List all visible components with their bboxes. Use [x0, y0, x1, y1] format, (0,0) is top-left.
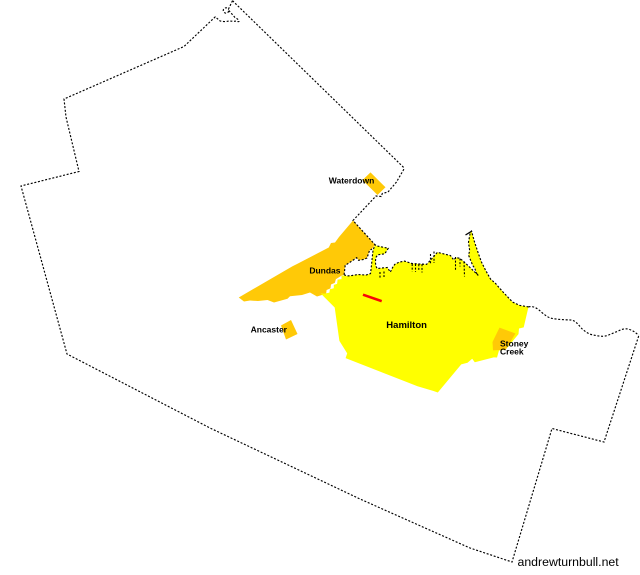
- svg-text:Creek: Creek: [500, 347, 524, 357]
- svg-text:Dundas: Dundas: [309, 265, 340, 275]
- svg-text:Ancaster: Ancaster: [251, 325, 288, 335]
- svg-text:Waterdown: Waterdown: [329, 175, 375, 185]
- svg-text:andrewturnbull.net: andrewturnbull.net: [518, 555, 620, 569]
- svg-text:Hamilton: Hamilton: [386, 320, 427, 331]
